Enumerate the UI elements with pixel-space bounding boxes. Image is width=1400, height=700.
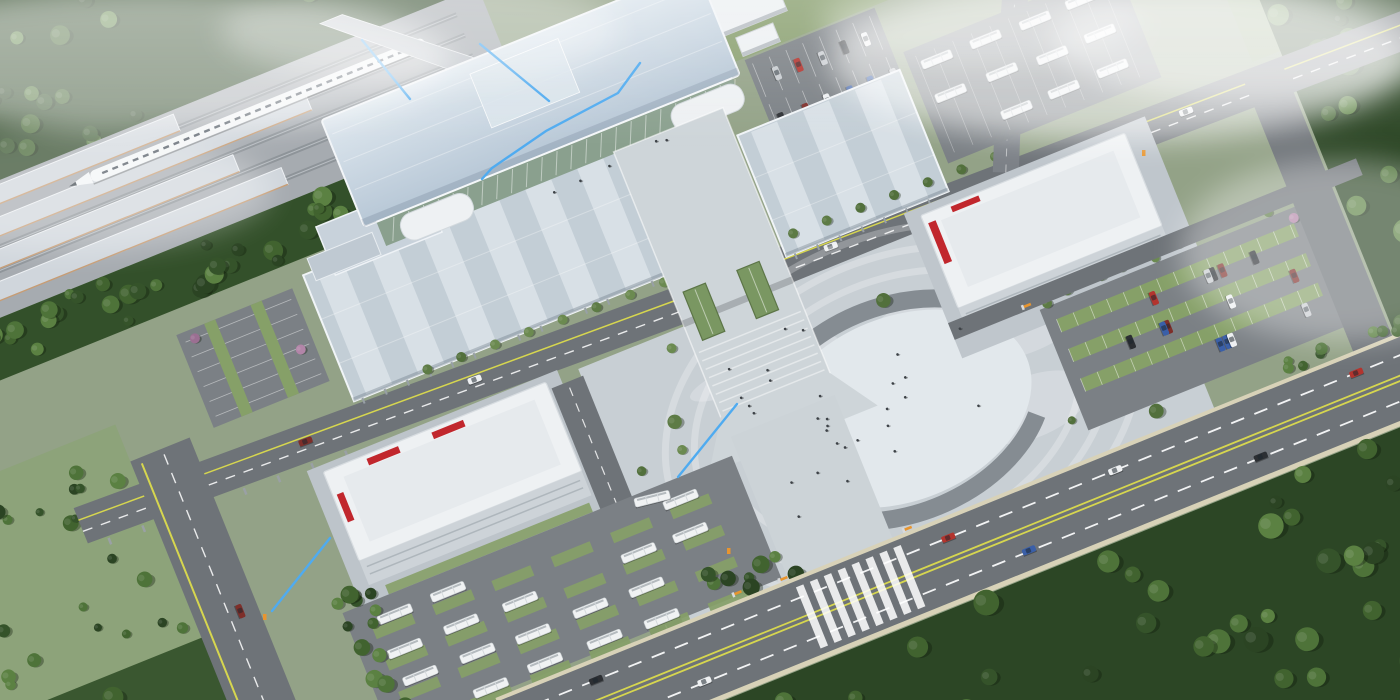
orange-marker — [727, 548, 731, 554]
aerial-architectural-render — [0, 0, 1400, 700]
orange-marker — [1142, 150, 1146, 156]
orange-marker — [263, 614, 267, 620]
render-canvas — [0, 0, 1400, 700]
